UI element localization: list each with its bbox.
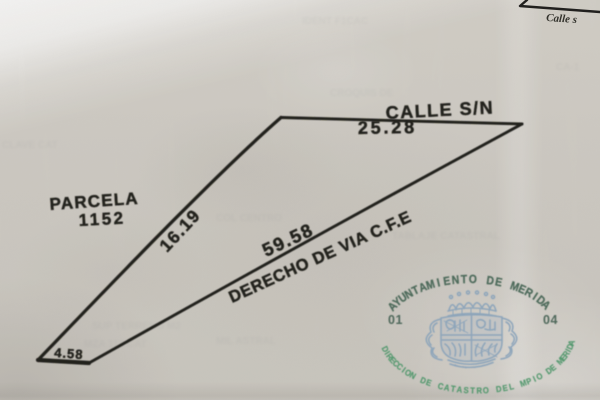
svg-text:T: T (470, 386, 475, 396)
svg-text:COL CENTRO: COL CENTRO (216, 213, 282, 224)
svg-text:25.28: 25.28 (358, 117, 417, 138)
svg-text:N: N (451, 274, 460, 287)
svg-text:04: 04 (543, 313, 558, 327)
svg-text:CROQUIS DE: CROQUIS DE (330, 88, 394, 99)
svg-text:R: R (476, 386, 482, 396)
svg-text:IDENT F1CAC: IDENT F1CAC (302, 16, 368, 27)
svg-text:1152: 1152 (78, 209, 126, 230)
svg-text:Calle s: Calle s (546, 12, 578, 26)
svg-text:4.58: 4.58 (54, 345, 84, 362)
svg-text:A: A (456, 385, 463, 395)
svg-text:MIL ASTRAL: MIL ASTRAL (216, 336, 276, 347)
svg-text:SUP TERRENO M2: SUP TERRENO M2 (92, 321, 181, 332)
svg-text:CLAVE CAT: CLAVE CAT (2, 140, 58, 151)
svg-text:O: O (483, 386, 490, 396)
svg-text:CA-1: CA-1 (556, 62, 580, 73)
svg-text:01: 01 (388, 313, 403, 327)
svg-text:T: T (461, 273, 468, 286)
svg-text:TABLAJE CATASTRAL: TABLAJE CATASTRAL (392, 231, 500, 242)
svg-text:O: O (469, 273, 478, 286)
